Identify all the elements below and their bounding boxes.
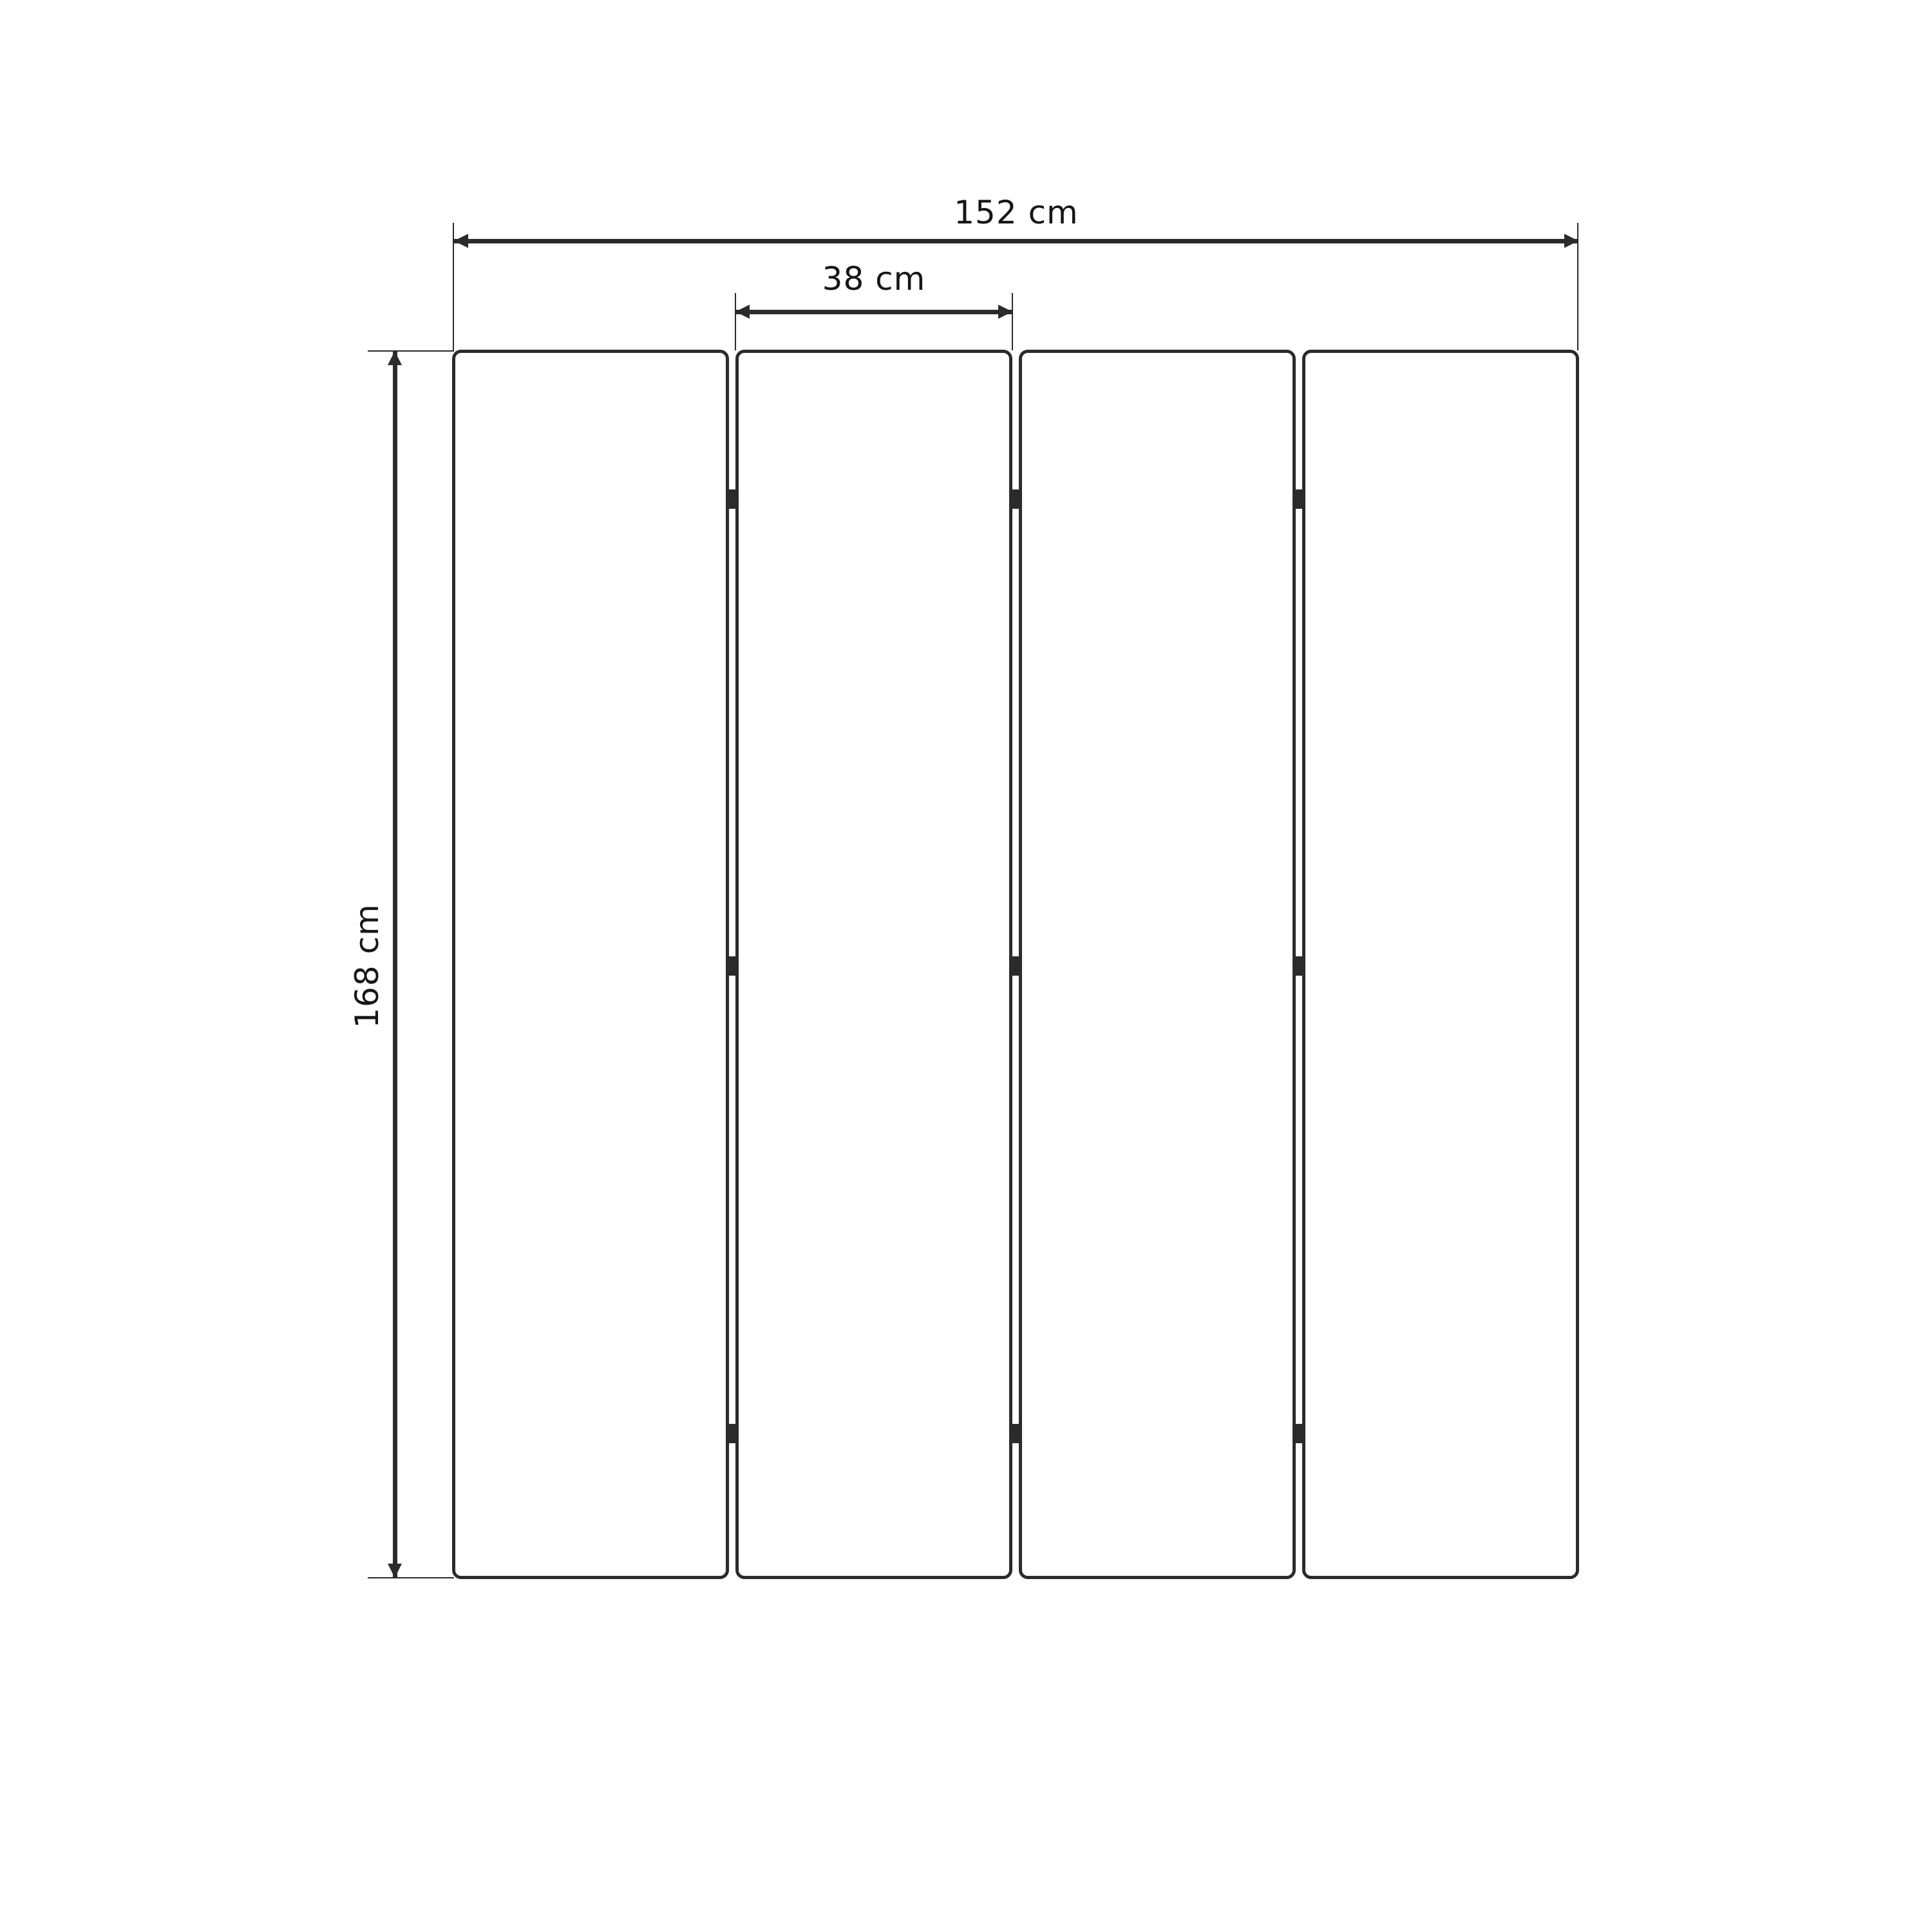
panel-2 — [735, 350, 1012, 1579]
arrowhead-right-icon — [1564, 234, 1578, 248]
hinge-icon — [1011, 1424, 1020, 1443]
extension-line-left — [735, 293, 736, 350]
arrowhead-left-icon — [454, 234, 468, 248]
arrowhead-down-icon — [388, 1564, 402, 1578]
panel-4 — [1302, 350, 1579, 1579]
diagram-canvas: 152 cm 38 cm 168 cm — [0, 0, 1932, 1932]
dimension-line — [735, 310, 1012, 314]
arrowhead-left-icon — [735, 305, 750, 319]
hinge-icon — [1011, 489, 1020, 509]
extension-line-top — [368, 350, 454, 352]
arrowhead-right-icon — [998, 305, 1012, 319]
hinge-icon — [728, 1424, 737, 1443]
hinge-icon — [1011, 956, 1020, 976]
panel-1 — [452, 350, 729, 1579]
hinge-icon — [1294, 956, 1303, 976]
hinge-icon — [1294, 1424, 1303, 1443]
hinge-icon — [728, 956, 737, 976]
dimension-line — [393, 351, 397, 1578]
extension-line-bottom — [368, 1577, 454, 1578]
hinge-icon — [1294, 489, 1303, 509]
extension-line-right — [1012, 293, 1013, 350]
dimension-line — [454, 239, 1578, 243]
hinge-icon — [728, 489, 737, 509]
total-width-label: 152 cm — [454, 196, 1578, 229]
panel-width-label: 38 cm — [735, 263, 1012, 295]
panel-3 — [1019, 350, 1296, 1579]
height-label: 168 cm — [351, 904, 383, 1028]
arrowhead-up-icon — [388, 351, 402, 365]
